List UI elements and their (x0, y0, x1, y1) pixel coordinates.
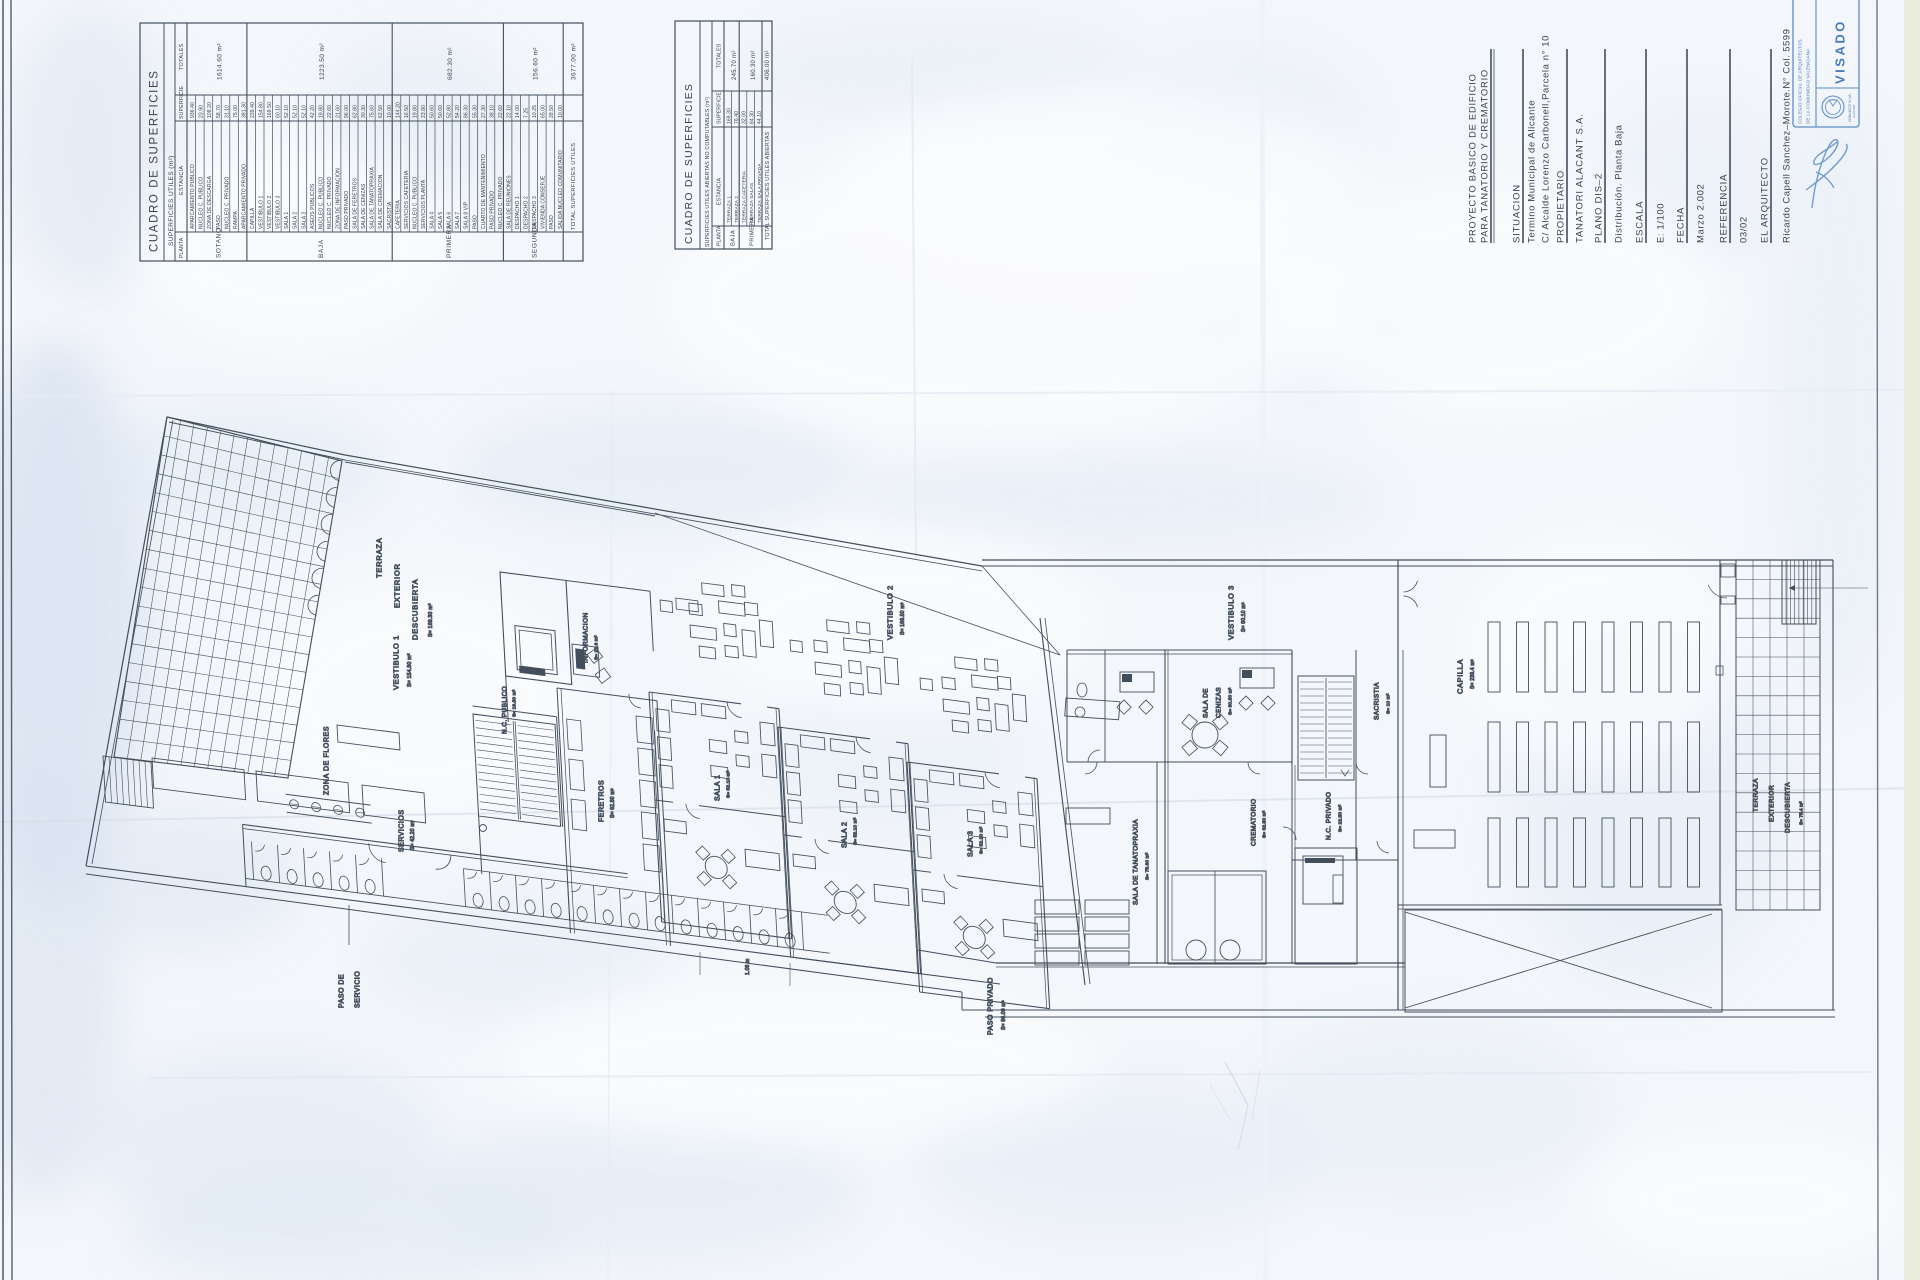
svg-text:SALA 8 VIP: SALA 8 VIP (464, 201, 470, 229)
svg-text:S= 96.00 m²: S= 96.00 m² (1001, 1000, 1007, 1030)
svg-text:SALA 1: SALA 1 (715, 775, 722, 801)
svg-text:SALA 4: SALA 4 (430, 212, 436, 229)
svg-text:VIVIENDA CONSERJE: VIVIENDA CONSERJE (541, 175, 547, 229)
svg-text:SALA DE TANATOPRAXIA: SALA DE TANATOPRAXIA (370, 167, 376, 229)
svg-text:DESPACHO 1: DESPACHO 1 (515, 196, 521, 229)
svg-text:S= 52.10 m²: S= 52.10 m² (853, 817, 859, 845)
svg-text:TOTAL SUPERFICIES UTILES ABIER: TOTAL SUPERFICIES UTILES ABIERTAS (765, 131, 771, 240)
svg-text:96.00: 96.00 (344, 105, 350, 118)
svg-text:SITUACION: SITUACION (1511, 184, 1522, 243)
svg-text:381.30: 381.30 (241, 102, 247, 118)
svg-text:PROPIETARIO: PROPIETARIO (1555, 170, 1566, 243)
svg-text:EXTERIOR: EXTERIOR (1768, 785, 1775, 822)
svg-text:SUPERFICIE: SUPERFICIE (179, 86, 185, 119)
svg-text:22.10: 22.10 (507, 105, 513, 118)
svg-text:CAPILLA: CAPILLA (1456, 659, 1465, 694)
svg-text:C/ Alcalde Lorenzo Carbonell,P: C/ Alcalde Lorenzo Carbonell,Parcela n° … (1540, 35, 1551, 243)
svg-text:44.10: 44.10 (757, 111, 763, 124)
svg-text:10.00: 10.00 (387, 105, 393, 118)
svg-text:30.30: 30.30 (361, 105, 367, 118)
svg-text:SOTANO: SOTANO (215, 227, 222, 258)
svg-text:PROYECTO BASICO DE EDIFICIO: PROYECTO BASICO DE EDIFICIO (1467, 73, 1477, 243)
svg-text:169.50: 169.50 (267, 102, 273, 118)
svg-text:DESCUBIERTA: DESCUBIERTA (411, 579, 420, 640)
svg-text:SACRISTIA: SACRISTIA (1373, 682, 1380, 720)
svg-text:169.30: 169.30 (727, 108, 733, 124)
svg-text:S= 52.10 m²: S= 52.10 m² (979, 826, 985, 854)
svg-text:BAJA: BAJA (731, 230, 737, 246)
svg-text:1.06 m: 1.06 m (745, 959, 751, 976)
svg-text:108.20: 108.20 (207, 102, 213, 118)
svg-text:CAPILLA: CAPILLA (250, 207, 256, 229)
svg-text:SALA 7: SALA 7 (455, 212, 461, 229)
svg-text:ESTANCIA: ESTANCIA (179, 165, 185, 195)
svg-text:TERRAZA CAFETERIA: TERRAZA CAFETERIA (742, 170, 748, 223)
svg-text:VISADO: VISADO (1833, 19, 1848, 84)
svg-text:S= 75.4 m²: S= 75.4 m² (1799, 801, 1804, 825)
svg-text:TERRAZA 1: TERRAZA 1 (726, 196, 732, 223)
svg-text:CAFETERIA: CAFETERIA (395, 199, 401, 229)
svg-text:COLEGIO OFICIAL DE ARQUITECTOS: COLEGIO OFICIAL DE ARQUITECTOS (1798, 39, 1803, 124)
svg-text:ZONA DE FLORES: ZONA DE FLORES (324, 726, 331, 795)
svg-text:55.30: 55.30 (472, 105, 478, 118)
svg-text:EL ARQUITECTO: EL ARQUITECTO (1759, 157, 1770, 243)
svg-text:1223.50 m²: 1223.50 m² (319, 43, 326, 80)
svg-text:SALA DE TANATOPRAXIA: SALA DE TANATOPRAXIA (1132, 819, 1139, 905)
svg-text:62.50: 62.50 (378, 105, 384, 118)
svg-text:Termino Municipal de Alicante: Termino Municipal de Alicante (1526, 100, 1537, 243)
svg-text:SUPERFICIES UTILES (m²): SUPERFICIES UTILES (m²) (168, 155, 175, 246)
svg-text:CUARTO DE MANTENIMIENTO: CUARTO DE MANTENIMIENTO (481, 154, 487, 229)
svg-text:FECHA: FECHA (1675, 207, 1686, 243)
svg-text:SUPERFICIE: SUPERFICIE (716, 92, 722, 124)
svg-text:PLANTA: PLANTA (179, 237, 185, 258)
svg-text:S= 22.50 m²: S= 22.50 m² (1338, 804, 1344, 832)
svg-text:SALA DE CREMACION: SALA DE CREMACION (378, 174, 384, 229)
svg-text:52.10: 52.10 (284, 105, 290, 118)
svg-text:S= 42.20 m²: S= 42.20 m² (410, 820, 416, 850)
svg-text:DESCUBIERTA: DESCUBIERTA (1784, 782, 1791, 833)
svg-text:S= 62.50 m²: S= 62.50 m² (1262, 810, 1268, 838)
svg-text:SACRISTIA: SACRISTIA (387, 201, 393, 229)
svg-text:23.80: 23.80 (421, 105, 427, 118)
svg-text:PLANTA: PLANTA (716, 225, 722, 246)
svg-text:SALA DE CENIZAS: SALA DE CENIZAS (361, 183, 367, 229)
svg-text:SUPERFICIES UTILES ABIERTAS NO: SUPERFICIES UTILES ABIERTAS NO COMPUTABL… (705, 97, 711, 247)
svg-text:60.10: 60.10 (276, 105, 282, 118)
svg-text:ZONA DE INFORMACION: ZONA DE INFORMACION (336, 168, 342, 229)
svg-text:52.10: 52.10 (301, 105, 307, 118)
svg-text:TERRAZA: TERRAZA (1752, 778, 1759, 812)
svg-text:245.70 m²: 245.70 m² (732, 50, 738, 80)
svg-text:52.10: 52.10 (293, 105, 299, 118)
svg-text:SALA 2: SALA 2 (293, 212, 299, 229)
svg-text:22.60: 22.60 (498, 105, 504, 118)
svg-text:VESTIBULO 2: VESTIBULO 2 (267, 196, 273, 229)
svg-text:DESPACHO 2: DESPACHO 2 (524, 196, 530, 229)
svg-text:38.10: 38.10 (489, 105, 495, 118)
svg-text:86.30: 86.30 (464, 105, 470, 118)
svg-text:65.00: 65.00 (541, 105, 547, 118)
svg-text:PLANO DIS–2: PLANO DIS–2 (1593, 173, 1604, 243)
svg-text:Marzo 2.002: Marzo 2.002 (1695, 184, 1706, 243)
svg-text:Distribución. Planta Baja: Distribución. Planta Baja (1613, 124, 1624, 243)
svg-text:SERVICIOS: SERVICIOS (399, 810, 406, 853)
svg-text:76.40: 76.40 (734, 111, 740, 124)
svg-text:APARCAMIENTO PUBLICO: APARCAMIENTO PUBLICO (190, 164, 196, 229)
svg-text:21.60: 21.60 (336, 105, 342, 118)
svg-text:DE LA COMUNIDAD VALENCIANA: DE LA COMUNIDAD VALENCIANA (1806, 48, 1811, 124)
svg-text:TANATORI ALACANT S.A.: TANATORI ALACANT S.A. (1574, 113, 1585, 243)
svg-text:TOTALES: TOTALES (716, 43, 722, 68)
svg-text:75.00: 75.00 (233, 105, 239, 118)
svg-text:VESTIBULO 1: VESTIBULO 1 (259, 196, 265, 229)
svg-text:SALA 2: SALA 2 (842, 822, 849, 848)
svg-text:INFORMACION: INFORMACION (582, 612, 589, 663)
svg-text:FERETROS: FERETROS (599, 780, 606, 822)
svg-text:ZONA DE DESCARGA: ZONA DE DESCARGA (207, 175, 213, 229)
svg-text:BAJA: BAJA (318, 239, 325, 258)
svg-text:3677.00 m²: 3677.00 m² (570, 43, 577, 80)
svg-text:PRIMERA: PRIMERA (750, 217, 756, 246)
svg-text:58.70: 58.70 (216, 105, 222, 118)
svg-text:CUADRO DE SUPERFICIES: CUADRO DE SUPERFICIES (683, 83, 695, 244)
svg-text:75.60: 75.60 (370, 105, 376, 118)
svg-text:SALA 3: SALA 3 (968, 831, 975, 857)
svg-text:SALIDA NUCLEO COMUNITARIO: SALIDA NUCLEO COMUNITARIO (558, 150, 564, 229)
svg-text:PARA TANATORIO Y CREMATORIO: PARA TANATORIO Y CREMATORIO (1479, 69, 1489, 243)
svg-text:SALA 3: SALA 3 (301, 212, 307, 229)
svg-text:160.30 m²: 160.30 m² (751, 50, 757, 80)
svg-text:S= 21.6 m²: S= 21.6 m² (594, 635, 600, 660)
svg-text:144.20: 144.20 (395, 102, 401, 118)
svg-text:S= 62.80 m²: S= 62.80 m² (610, 788, 616, 818)
svg-text:CENIZAS: CENIZAS (1215, 687, 1222, 718)
svg-text:PRIMERA: PRIMERA (446, 224, 453, 258)
svg-text:406.00 m²: 406.00 m² (765, 50, 771, 80)
svg-text:SERVICIO: SERVICIO (355, 971, 362, 1008)
svg-text:23.90: 23.90 (199, 105, 205, 118)
svg-text:SALA 1: SALA 1 (284, 212, 290, 229)
svg-text:PASO PRIVADO: PASO PRIVADO (988, 977, 995, 1035)
svg-text:NUCLEO C. PRIVADO: NUCLEO C. PRIVADO (498, 177, 504, 229)
svg-text:936.40: 936.40 (190, 102, 196, 118)
svg-text:S= 52.10 m²: S= 52.10 m² (726, 770, 732, 798)
svg-text:TERRAZA SALA PRIVADA: TERRAZA SALA PRIVADA (757, 163, 763, 223)
svg-text:32.00: 32.00 (742, 111, 748, 124)
svg-text:682.30 m²: 682.30 m² (447, 47, 454, 80)
svg-text:VESTIBULO 1: VESTIBULO 1 (392, 635, 401, 690)
svg-text:APARCAMIENTO PRIVADO: APARCAMIENTO PRIVADO (241, 164, 247, 229)
svg-text:SALA DE: SALA DE (1202, 688, 1209, 718)
svg-text:REFERENCIA: REFERENCIA (1718, 174, 1729, 243)
svg-text:22.60: 22.60 (327, 105, 333, 118)
svg-text:27.30: 27.30 (481, 105, 487, 118)
svg-text:SALA 5: SALA 5 (438, 212, 444, 229)
svg-text:CUADRO DE SUPERFICIES: CUADRO DE SUPERFICIES (149, 70, 161, 252)
svg-text:14.00: 14.00 (515, 105, 521, 118)
svg-text:S= 30.30 m²: S= 30.30 m² (1228, 687, 1234, 715)
svg-text:SERVICIOS CAFETERIA: SERVICIOS CAFETERIA (404, 170, 410, 229)
svg-text:Ricardo Capell Sanchez–Morote.: Ricardo Capell Sanchez–Morote.N° Col. 55… (1781, 29, 1792, 243)
svg-text:16.50: 16.50 (404, 105, 410, 118)
svg-text:S= 239.4 m²: S= 239.4 m² (1470, 659, 1476, 689)
svg-text:TERRAZA: TERRAZA (375, 537, 384, 578)
svg-text:SERVICIOS PLANTA: SERVICIOS PLANTA (421, 179, 427, 229)
svg-text:62.80: 62.80 (353, 105, 359, 118)
svg-text:NUCLEO C. PRIVADO: NUCLEO C. PRIVADO (327, 177, 333, 229)
svg-text:E: 1/100: E: 1/100 (1655, 203, 1666, 243)
svg-text:S= 75.60 m²: S= 75.60 m² (1145, 852, 1151, 880)
svg-text:NUCLEO C. PRIVADO: NUCLEO C. PRIVADO (224, 177, 230, 229)
svg-text:PASO PRIVADO: PASO PRIVADO (489, 191, 495, 229)
svg-text:S= 169.50 m²: S= 169.50 m² (900, 602, 906, 635)
svg-text:SALA DE FERETROS: SALA DE FERETROS (353, 177, 359, 229)
svg-text:SEGUNDA: SEGUNDA (532, 222, 539, 258)
svg-text:N.C. PRIVADO: N.C. PRIVADO (1325, 792, 1332, 840)
svg-text:19.80: 19.80 (412, 105, 418, 118)
svg-text:VESTIBULO 2: VESTIBULO 2 (886, 585, 895, 640)
svg-text:42.20: 42.20 (310, 105, 316, 118)
svg-text:S= 10 m²: S= 10 m² (1386, 693, 1392, 714)
svg-text:84.30: 84.30 (749, 111, 755, 124)
svg-text:ALACANT: ALACANT (1852, 104, 1856, 118)
svg-text:28.50: 28.50 (549, 105, 555, 118)
svg-text:54.20: 54.20 (455, 105, 461, 118)
svg-text:239.40: 239.40 (250, 102, 256, 118)
svg-text:52.80: 52.80 (447, 105, 453, 118)
svg-text:VESTIBULO 3: VESTIBULO 3 (276, 196, 282, 229)
svg-text:PASO: PASO (549, 215, 555, 229)
svg-text:CREMATORIO: CREMATORIO (1250, 799, 1257, 846)
svg-text:19.80: 19.80 (318, 105, 324, 118)
svg-text:03/02: 03/02 (1738, 216, 1749, 243)
svg-text:ESTANCIA: ESTANCIA (716, 178, 722, 205)
svg-text:TERRAZA 2: TERRAZA 2 (734, 196, 740, 223)
svg-text:154.80: 154.80 (259, 102, 265, 118)
svg-text:SALA DE REUNIONES: SALA DE REUNIONES (507, 175, 513, 229)
svg-text:NUCLEO C. PUBLICO: NUCLEO C. PUBLICO (199, 177, 205, 229)
svg-text:10.25: 10.25 (532, 105, 538, 118)
svg-text:31.10: 31.10 (224, 105, 230, 118)
svg-text:156.60 m²: 156.60 m² (533, 47, 540, 80)
svg-text:RAMPA: RAMPA (233, 211, 239, 229)
svg-text:PASO: PASO (472, 215, 478, 229)
svg-text:S= 169.30 m²: S= 169.30 m² (428, 603, 434, 637)
svg-text:PASO PRIVADO: PASO PRIVADO (344, 191, 350, 229)
svg-text:10.00: 10.00 (558, 105, 564, 118)
svg-text:ESCALA: ESCALA (1634, 201, 1645, 243)
svg-text:50.60: 50.60 (438, 105, 444, 118)
svg-text:EXTERIOR: EXTERIOR (393, 563, 402, 608)
svg-text:NUCLEO C. PUBLICO: NUCLEO C. PUBLICO (318, 177, 324, 229)
svg-text:50.60: 50.60 (430, 105, 436, 118)
svg-text:PASO: PASO (216, 215, 222, 229)
svg-text:S= 60.10 m²: S= 60.10 m² (1241, 602, 1247, 632)
svg-text:S= 19.80 m²: S= 19.80 m² (512, 689, 518, 717)
svg-text:NUCLEO C. PUBLICO: NUCLEO C. PUBLICO (412, 177, 418, 229)
svg-text:PASO DE: PASO DE (339, 974, 346, 1008)
svg-text:S= 154.80 m²: S= 154.80 m² (407, 653, 413, 687)
svg-text:TOTAL SUPERFICIES UTILES: TOTAL SUPERFICIES UTILES (571, 143, 577, 230)
svg-text:1614.60 m²: 1614.60 m² (216, 43, 223, 80)
svg-text:7.25: 7.25 (524, 108, 530, 118)
svg-text:VESTIBULO 3: VESTIBULO 3 (1227, 585, 1236, 640)
svg-text:TOTALES: TOTALES (179, 43, 185, 70)
svg-text:ASEOS PUBLICOS: ASEOS PUBLICOS (310, 183, 316, 229)
